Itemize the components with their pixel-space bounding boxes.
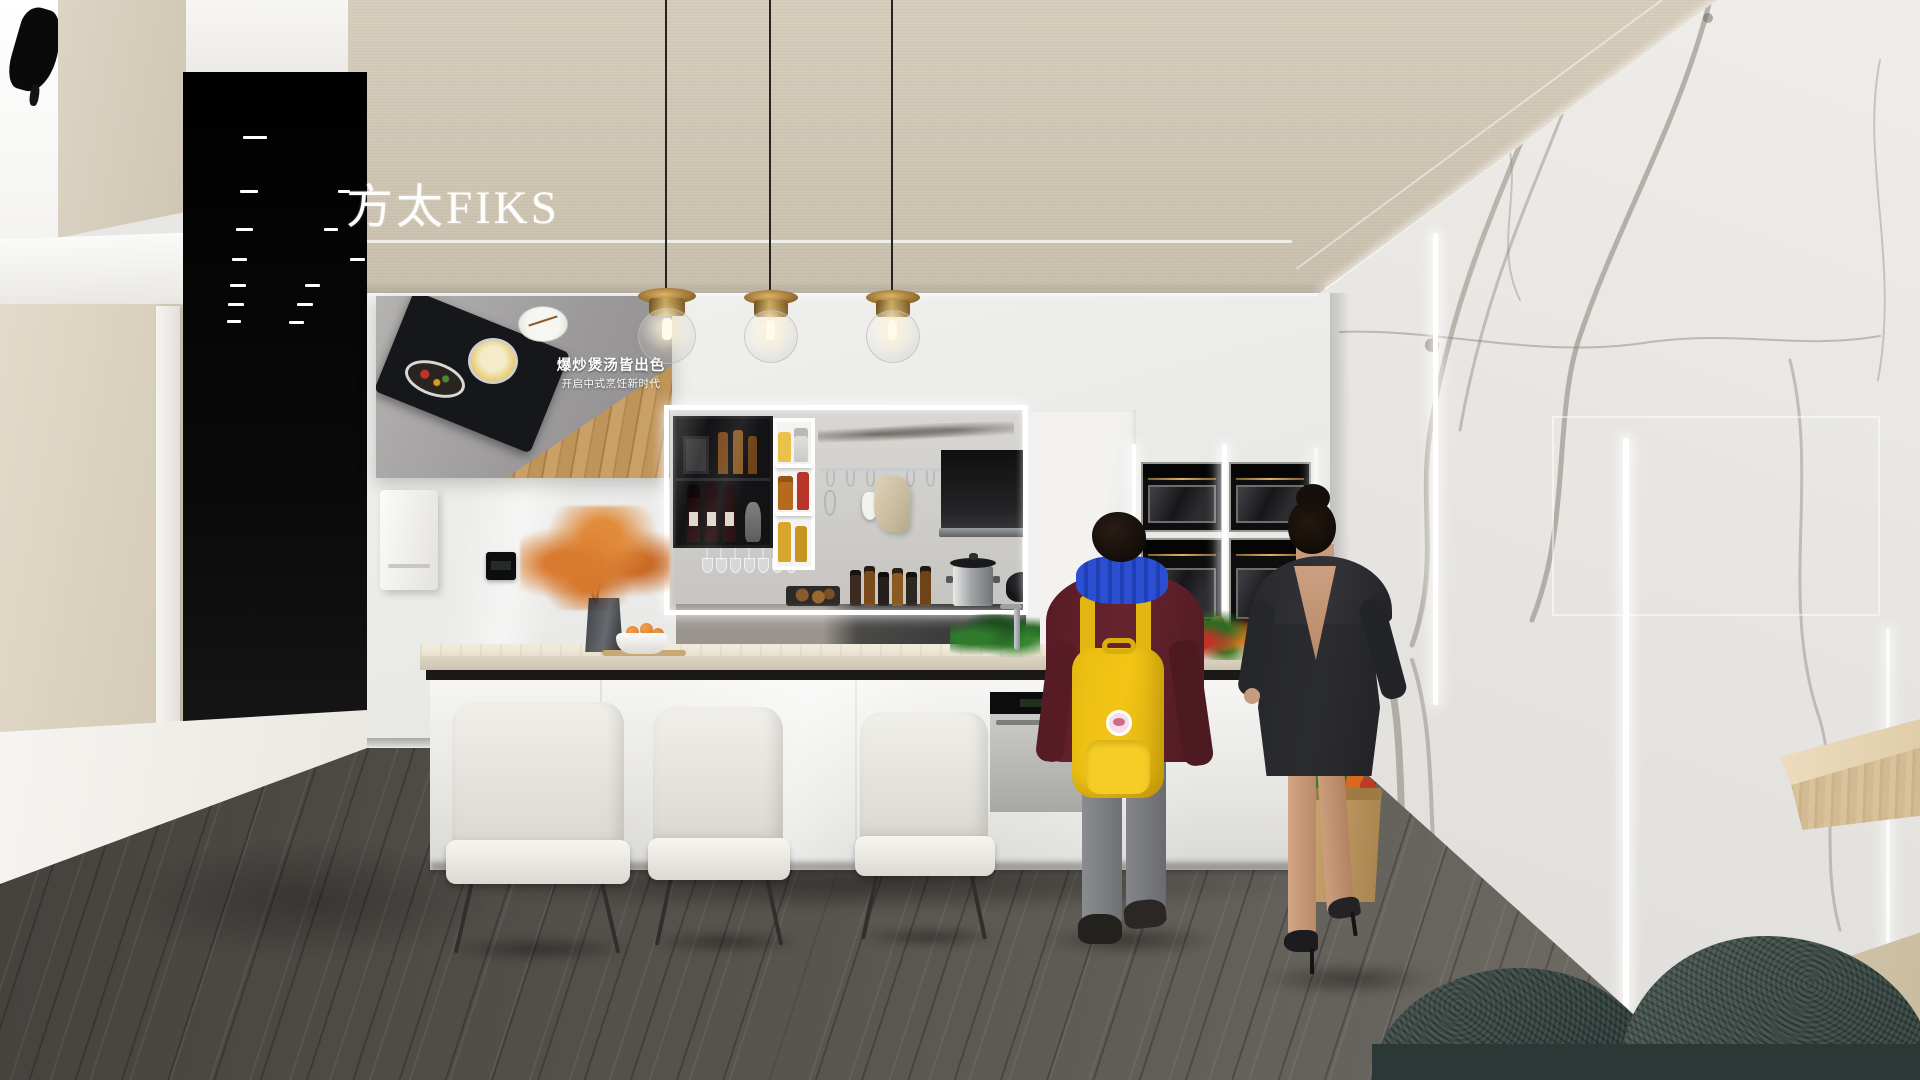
led-strip-vertical-1 [1433, 233, 1438, 705]
wall-bench [1780, 712, 1920, 830]
lamp-cord [891, 0, 893, 292]
oven-control-band [1231, 464, 1309, 477]
wall-oven-top-left [1141, 462, 1223, 532]
marble-seam-frame [1552, 416, 1880, 616]
highlight-dash [305, 284, 320, 287]
woman-leg [1288, 766, 1316, 936]
wall-thermostat [486, 552, 516, 580]
fresh-herbs [950, 614, 1040, 658]
lamp-bulb [766, 320, 775, 340]
high-heel-spike [1310, 948, 1314, 974]
thermostat-display [491, 561, 511, 570]
lamp-cord [665, 0, 667, 290]
woman-floor-shadow [1258, 962, 1438, 996]
chair-seat [855, 836, 995, 876]
mezzanine-fascia [0, 233, 187, 311]
oven-control-band [1143, 464, 1221, 477]
woman-hair-bun [1296, 484, 1330, 512]
led-strip-vertical-2 [1623, 438, 1629, 1013]
oven-control-band [1143, 540, 1221, 553]
highlight-dash [289, 321, 304, 324]
chair-backrest [452, 702, 624, 852]
highlight-dash [324, 228, 338, 231]
mezzanine-wall [58, 0, 186, 238]
woman-hand [1244, 688, 1260, 704]
black-column [183, 72, 367, 724]
man-hair [1092, 512, 1146, 562]
highlight-dash [240, 190, 258, 193]
man-scarf [1076, 556, 1168, 604]
lamp-cord [769, 0, 771, 292]
poster-subline: 开启中式烹饪新时代 [554, 376, 668, 391]
poster-soup-pot [468, 338, 518, 384]
backpack-front-pocket [1086, 740, 1150, 794]
brand-logo-text: 方太FIKS [346, 168, 560, 237]
chair-shadow [440, 936, 640, 962]
highlight-dash [230, 284, 246, 287]
man-shoe [1123, 898, 1168, 930]
man-shoe [1078, 914, 1122, 944]
ceiling-wedge [166, 0, 370, 76]
highlight-dash [243, 136, 267, 139]
highlight-dash [236, 228, 253, 231]
sofa-base [1372, 1044, 1920, 1080]
oven-brass-accent [1236, 478, 1305, 480]
chair-backrest [653, 707, 783, 847]
lamp-bulb [662, 318, 672, 340]
fruit-bowl [616, 633, 668, 654]
kitchen-showroom-scene: 方太FIKS 爆炒煲汤皆出色 开启中式烹饪新时代 [0, 0, 1920, 1080]
chair-backrest [860, 712, 988, 844]
dried-flowers [520, 506, 670, 610]
oven-brass-accent [1236, 554, 1305, 556]
dispenser-slot [388, 564, 430, 568]
paper-towel-dispenser [380, 490, 438, 590]
highlight-dash [297, 303, 313, 306]
chair-seat [648, 838, 790, 880]
faucet-spout [1000, 604, 1022, 609]
oven-glass-door [1148, 485, 1215, 523]
niche-light-frame [664, 405, 1028, 615]
backpack-handle [1102, 638, 1136, 654]
highlight-dash [227, 320, 241, 323]
man-floor-shadow [1040, 924, 1220, 956]
backpack-logo-fox [1113, 718, 1125, 726]
highlight-dash [232, 258, 247, 261]
cooktop-ad-poster: 爆炒煲汤皆出色 开启中式烹饪新时代 [376, 296, 672, 478]
oven-brass-accent [1148, 554, 1217, 556]
poster-plate [518, 306, 568, 342]
chair-seat [446, 840, 630, 884]
oven-brass-accent [1148, 478, 1217, 480]
highlight-dash [350, 258, 365, 261]
soffit-trim-line [352, 240, 1292, 243]
door-frame [156, 306, 180, 728]
lamp-bulb [888, 320, 897, 340]
sink-faucet [1014, 606, 1020, 650]
highlight-dash [228, 303, 244, 306]
